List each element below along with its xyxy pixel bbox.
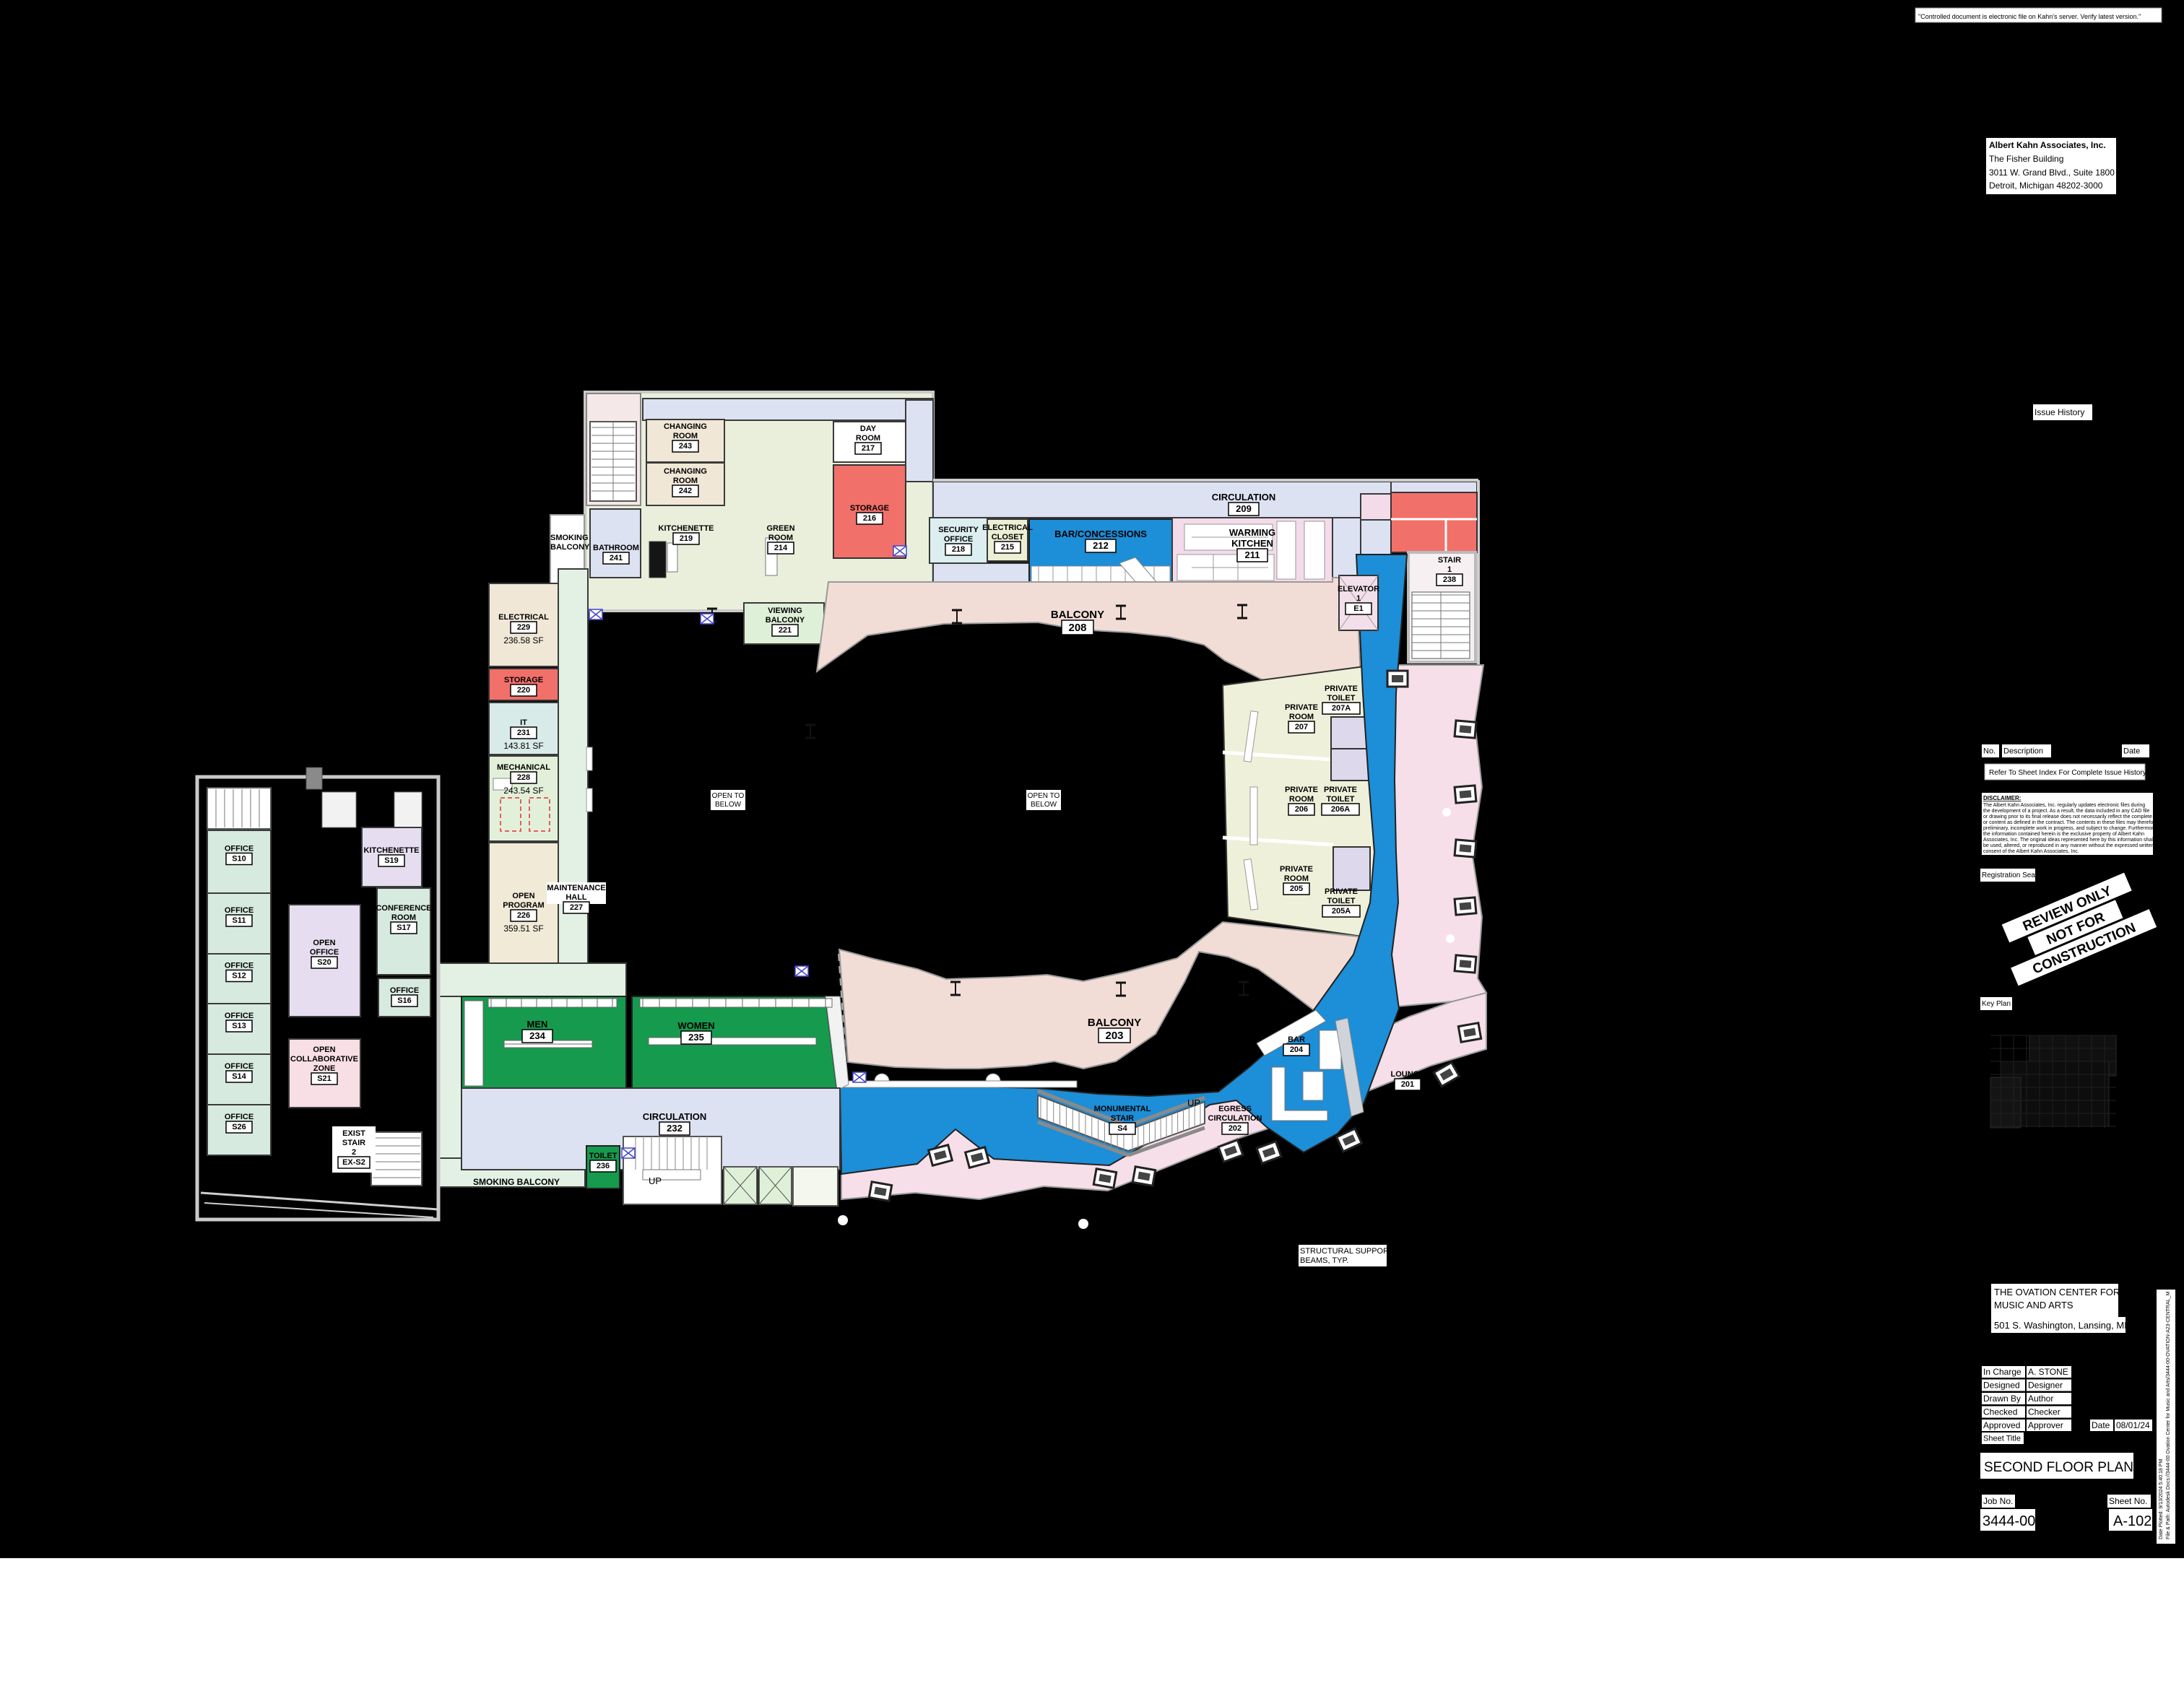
svg-text:BALCONY: BALCONY [1088,1017,1141,1029]
svg-text:UP: UP [1187,1097,1200,1108]
svg-text:241: 241 [610,554,623,562]
svg-text:PRIVATE: PRIVATE [1325,887,1358,896]
svg-text:Detroit, Michigan 48202-3000: Detroit, Michigan 48202-3000 [1989,181,2103,191]
svg-text:KITCHEN: KITCHEN [1231,538,1273,549]
svg-text:207A: 207A [1332,704,1351,713]
svg-text:TOILET: TOILET [1327,694,1356,703]
svg-text:ROOM: ROOM [673,432,698,440]
svg-text:227: 227 [570,903,583,912]
svg-text:ROOM: ROOM [391,913,416,922]
svg-text:STAIR: STAIR [1438,556,1461,565]
svg-text:OPEN TO: OPEN TO [712,792,745,800]
svg-text:or drawing prior to its final: or drawing prior to its final release do… [1983,814,2167,820]
svg-text:234: 234 [529,1030,545,1041]
svg-text:KITCHENETTE: KITCHENETTE [659,524,714,533]
svg-text:207: 207 [1295,723,1308,731]
svg-text:or content as defined in the c: or content as defined in the contract. T… [1983,820,2164,825]
svg-text:242: 242 [679,487,692,495]
svg-text:A. STONE: A. STONE [2028,1367,2068,1377]
svg-text:PRIVATE: PRIVATE [1325,684,1358,693]
svg-text:STAIR: STAIR [342,1139,365,1147]
svg-text:Description: Description [2003,747,2043,756]
svg-text:SMOKING BALCONY: SMOKING BALCONY [473,1177,560,1187]
svg-text:CLOSET: CLOSET [992,533,1024,542]
svg-text:SMOKING: SMOKING [550,534,589,542]
svg-text:211: 211 [1245,549,1260,560]
svg-text:Approver: Approver [2028,1420,2063,1430]
svg-text:CIRCULATION: CIRCULATION [643,1111,707,1122]
svg-text:S4: S4 [1117,1124,1127,1133]
svg-text:S21: S21 [317,1074,331,1083]
svg-text:DAY: DAY [860,425,877,433]
svg-text:A-102: A-102 [2113,1513,2151,1529]
svg-text:BATHROOM: BATHROOM [593,544,639,552]
svg-text:ROOM: ROOM [673,477,698,485]
svg-text:OPEN TO: OPEN TO [1028,792,1060,800]
svg-text:ELECTRICAL: ELECTRICAL [498,613,549,622]
svg-text:Drawn By: Drawn By [1983,1394,2021,1404]
svg-text:BAR: BAR [1288,1035,1305,1044]
svg-text:Refer To Sheet Index For Compl: Refer To Sheet Index For Complete Issue … [1989,769,2146,777]
svg-text:OFFICE: OFFICE [225,1012,253,1020]
svg-text:221: 221 [779,626,792,635]
svg-text:3444-00: 3444-00 [1982,1513,2035,1529]
svg-text:OFFICE: OFFICE [944,535,973,544]
svg-text:Job No.: Job No. [1983,1496,2013,1506]
svg-text:In Charge: In Charge [1983,1367,2021,1377]
svg-text:TOILET: TOILET [1327,897,1356,905]
svg-text:OPEN: OPEN [313,1046,335,1054]
svg-text:S19: S19 [384,856,399,865]
svg-text:ROOM: ROOM [768,534,793,542]
svg-text:ROOM: ROOM [1284,874,1309,883]
svg-text:CHANGING: CHANGING [664,467,707,476]
svg-text:BALCONY: BALCONY [766,616,805,625]
svg-text:3011 W. Grand Blvd., Suite 180: 3011 W. Grand Blvd., Suite 1800 [1989,168,2115,178]
svg-text:CIRCULATION: CIRCULATION [1208,1114,1262,1123]
svg-text:BELOW: BELOW [1031,801,1057,809]
svg-text:S20: S20 [317,958,331,967]
svg-text:The Albert Kahn Associates, In: The Albert Kahn Associates, Inc. regular… [1983,803,2145,808]
svg-text:BAR/CONCESSIONS: BAR/CONCESSIONS [1054,529,1147,539]
svg-text:Sheet No.: Sheet No. [2109,1496,2147,1506]
svg-text:STORAGE: STORAGE [504,676,543,684]
svg-text:CIRCULATION: CIRCULATION [1212,492,1276,503]
svg-text:202: 202 [1228,1124,1241,1133]
svg-text:08/01/24: 08/01/24 [2116,1420,2150,1430]
svg-text:THE OVATION CENTER FOR: THE OVATION CENTER FOR [1994,1287,2120,1297]
svg-text:238: 238 [1443,575,1456,584]
svg-text:216: 216 [863,514,876,523]
svg-text:File & Path: Autodesk Docs://: File & Path: Autodesk Docs://3444-00 Ova… [2166,1292,2171,1539]
svg-text:243.54 SF: 243.54 SF [503,786,543,796]
svg-text:205: 205 [1290,884,1303,893]
svg-text:WOMEN: WOMEN [677,1020,714,1031]
svg-text:Registration Seal: Registration Seal [1982,871,2037,879]
svg-text:OFFICE: OFFICE [225,962,253,970]
svg-text:Designer: Designer [2028,1381,2063,1391]
svg-text:501 S. Washington, Lansing, MI: 501 S. Washington, Lansing, MI [1994,1320,2127,1331]
svg-text:Date: Date [2123,747,2140,756]
svg-text:S12: S12 [232,972,246,981]
svg-text:OFFICE: OFFICE [390,986,419,995]
svg-text:VIEWING: VIEWING [768,607,802,615]
svg-text:217: 217 [862,444,875,453]
svg-text:MECHANICAL: MECHANICAL [497,763,550,772]
svg-text:S17: S17 [396,923,411,932]
svg-text:228: 228 [517,773,530,782]
svg-text:EXIST: EXIST [342,1129,365,1138]
svg-text:OPEN: OPEN [512,892,534,900]
svg-text:OFFICE: OFFICE [225,1113,253,1121]
svg-text:Checked: Checked [1983,1407,2017,1417]
svg-text:CONFERENCE: CONFERENCE [376,904,431,913]
svg-text:be used, altered, or reproduce: be used, altered, or reproduced in any m… [1983,843,2154,848]
svg-text:236.58 SF: 236.58 SF [503,635,543,645]
svg-text:EX-S2: EX-S2 [342,1158,365,1167]
svg-text:201: 201 [1401,1080,1414,1089]
svg-text:208: 208 [1068,622,1086,634]
svg-text:OFFICE: OFFICE [225,845,253,853]
svg-text:No.: No. [1983,747,1995,756]
svg-text:STORAGE: STORAGE [850,504,889,513]
svg-text:STAIR: STAIR [1111,1114,1134,1123]
svg-text:MAINTENANCE: MAINTENANCE [547,884,605,892]
svg-text:ROOM: ROOM [1289,713,1314,721]
svg-text:ROOM: ROOM [856,434,880,443]
svg-text:OFFICE: OFFICE [310,948,339,957]
svg-text:MONUMENTAL: MONUMENTAL [1094,1105,1151,1113]
svg-text:OFFICE: OFFICE [225,906,253,915]
svg-text:Designed: Designed [1983,1381,2020,1391]
svg-text:BEAMS, TYP.: BEAMS, TYP. [1300,1256,1348,1265]
svg-text:BALCONY: BALCONY [1051,609,1104,621]
svg-text:PRIVATE: PRIVATE [1285,703,1318,712]
svg-text:IT: IT [520,718,527,727]
svg-text:SECOND FLOOR PLAN: SECOND FLOOR PLAN [1984,1460,2133,1475]
svg-text:Sheet Title: Sheet Title [1983,1435,2021,1443]
svg-text:Approved: Approved [1983,1420,2020,1430]
svg-text:The Fisher Building: The Fisher Building [1989,154,2063,164]
svg-text:SECURITY: SECURITY [938,526,979,534]
svg-text:359.51 SF: 359.51 SF [503,923,543,934]
svg-text:TOILET: TOILET [1327,795,1355,804]
svg-text:204: 204 [1290,1046,1304,1054]
svg-text:preliminary, incomplete work i: preliminary, incomplete work in progress… [1983,826,2158,831]
svg-text:215: 215 [1001,543,1014,552]
svg-text:TOILET: TOILET [589,1152,617,1160]
svg-text:ELECTRICAL: ELECTRICAL [982,523,1033,532]
svg-text:WARMING: WARMING [1229,527,1275,538]
svg-text:206A: 206A [1331,805,1350,814]
svg-text:BELOW: BELOW [715,801,742,809]
svg-text:Date: Date [2092,1420,2110,1430]
svg-text:ELEVATOR: ELEVATOR [1338,585,1379,594]
svg-text:Associates, Inc. The original: Associates, Inc. The original ideas repr… [1983,838,2162,843]
svg-text:PRIVATE: PRIVATE [1324,786,1357,794]
svg-text:S26: S26 [232,1123,246,1131]
svg-text:1: 1 [1447,565,1452,574]
svg-text:S14: S14 [232,1072,246,1081]
svg-text:S10: S10 [232,855,246,864]
svg-text:Key Plan: Key Plan [1982,1000,2011,1008]
svg-text:"Controlled document is electr: "Controlled document is electronic file … [1918,13,2141,20]
svg-text:BALCONY: BALCONY [550,543,590,552]
svg-text:236: 236 [597,1162,610,1170]
svg-text:206: 206 [1295,805,1308,814]
svg-text:LOUNGE: LOUNGE [1390,1070,1424,1079]
svg-text:219: 219 [680,534,693,543]
svg-text:COLLABORATIVE: COLLABORATIVE [290,1055,358,1064]
svg-text:Albert Kahn Associates, Inc.: Albert Kahn Associates, Inc. [1989,140,2106,150]
svg-text:MUSIC AND ARTS: MUSIC AND ARTS [1994,1300,2073,1310]
svg-text:220: 220 [517,686,530,695]
svg-text:226: 226 [517,911,530,920]
svg-text:the development of a project.: the development of a project. As a resul… [1983,809,2149,814]
svg-text:PRIVATE: PRIVATE [1280,865,1313,874]
svg-text:143.81 SF: 143.81 SF [503,741,543,751]
svg-text:HALL: HALL [565,893,587,902]
svg-text:consent of the Albert Kahn Ass: consent of the Albert Kahn Associates, I… [1983,849,2079,854]
svg-text:DISCLAIMER:: DISCLAIMER: [1983,795,2021,801]
svg-text:S11: S11 [233,916,246,925]
svg-text:229: 229 [517,623,530,632]
svg-text:OFFICE: OFFICE [225,1062,253,1071]
svg-text:209: 209 [1236,503,1252,514]
svg-text:205A: 205A [1332,907,1351,916]
svg-text:Issue History: Issue History [2034,407,2084,417]
svg-text:STRUCTURAL SUPPORT: STRUCTURAL SUPPORT [1300,1247,1394,1256]
svg-text:Checker: Checker [2028,1407,2060,1417]
svg-text:Date Plotted: 9/13/2024 5:40:1: Date Plotted: 9/13/2024 5:40:18 PM [2159,1459,2164,1539]
svg-text:212: 212 [1093,540,1109,551]
svg-text:E1: E1 [1353,604,1363,613]
svg-text:S16: S16 [397,996,412,1005]
svg-text:1: 1 [1356,594,1361,603]
svg-text:231: 231 [517,729,530,737]
svg-text:OPEN: OPEN [313,939,335,947]
svg-text:PROGRAM: PROGRAM [503,901,544,910]
svg-text:214: 214 [774,544,788,552]
svg-text:ZONE: ZONE [313,1064,336,1073]
svg-text:243: 243 [679,442,692,451]
svg-text:ROOM: ROOM [1289,795,1314,804]
svg-text:EGRESS: EGRESS [1218,1105,1252,1113]
svg-text:GREEN: GREEN [766,524,794,533]
svg-text:S13: S13 [232,1022,246,1030]
svg-text:the information contained here: the information contained herein is the … [1983,832,2144,837]
svg-text:2: 2 [352,1148,356,1157]
svg-text:235: 235 [688,1032,704,1043]
svg-text:MEN: MEN [527,1019,548,1030]
svg-text:KITCHENETTE: KITCHENETTE [364,846,420,855]
svg-text:PRIVATE: PRIVATE [1285,786,1318,794]
svg-text:CHANGING: CHANGING [664,422,707,431]
svg-text:218: 218 [952,545,965,554]
svg-text:Author: Author [2028,1394,2053,1404]
svg-text:UP: UP [649,1175,662,1186]
svg-text:232: 232 [667,1123,682,1134]
svg-text:203: 203 [1105,1030,1123,1042]
